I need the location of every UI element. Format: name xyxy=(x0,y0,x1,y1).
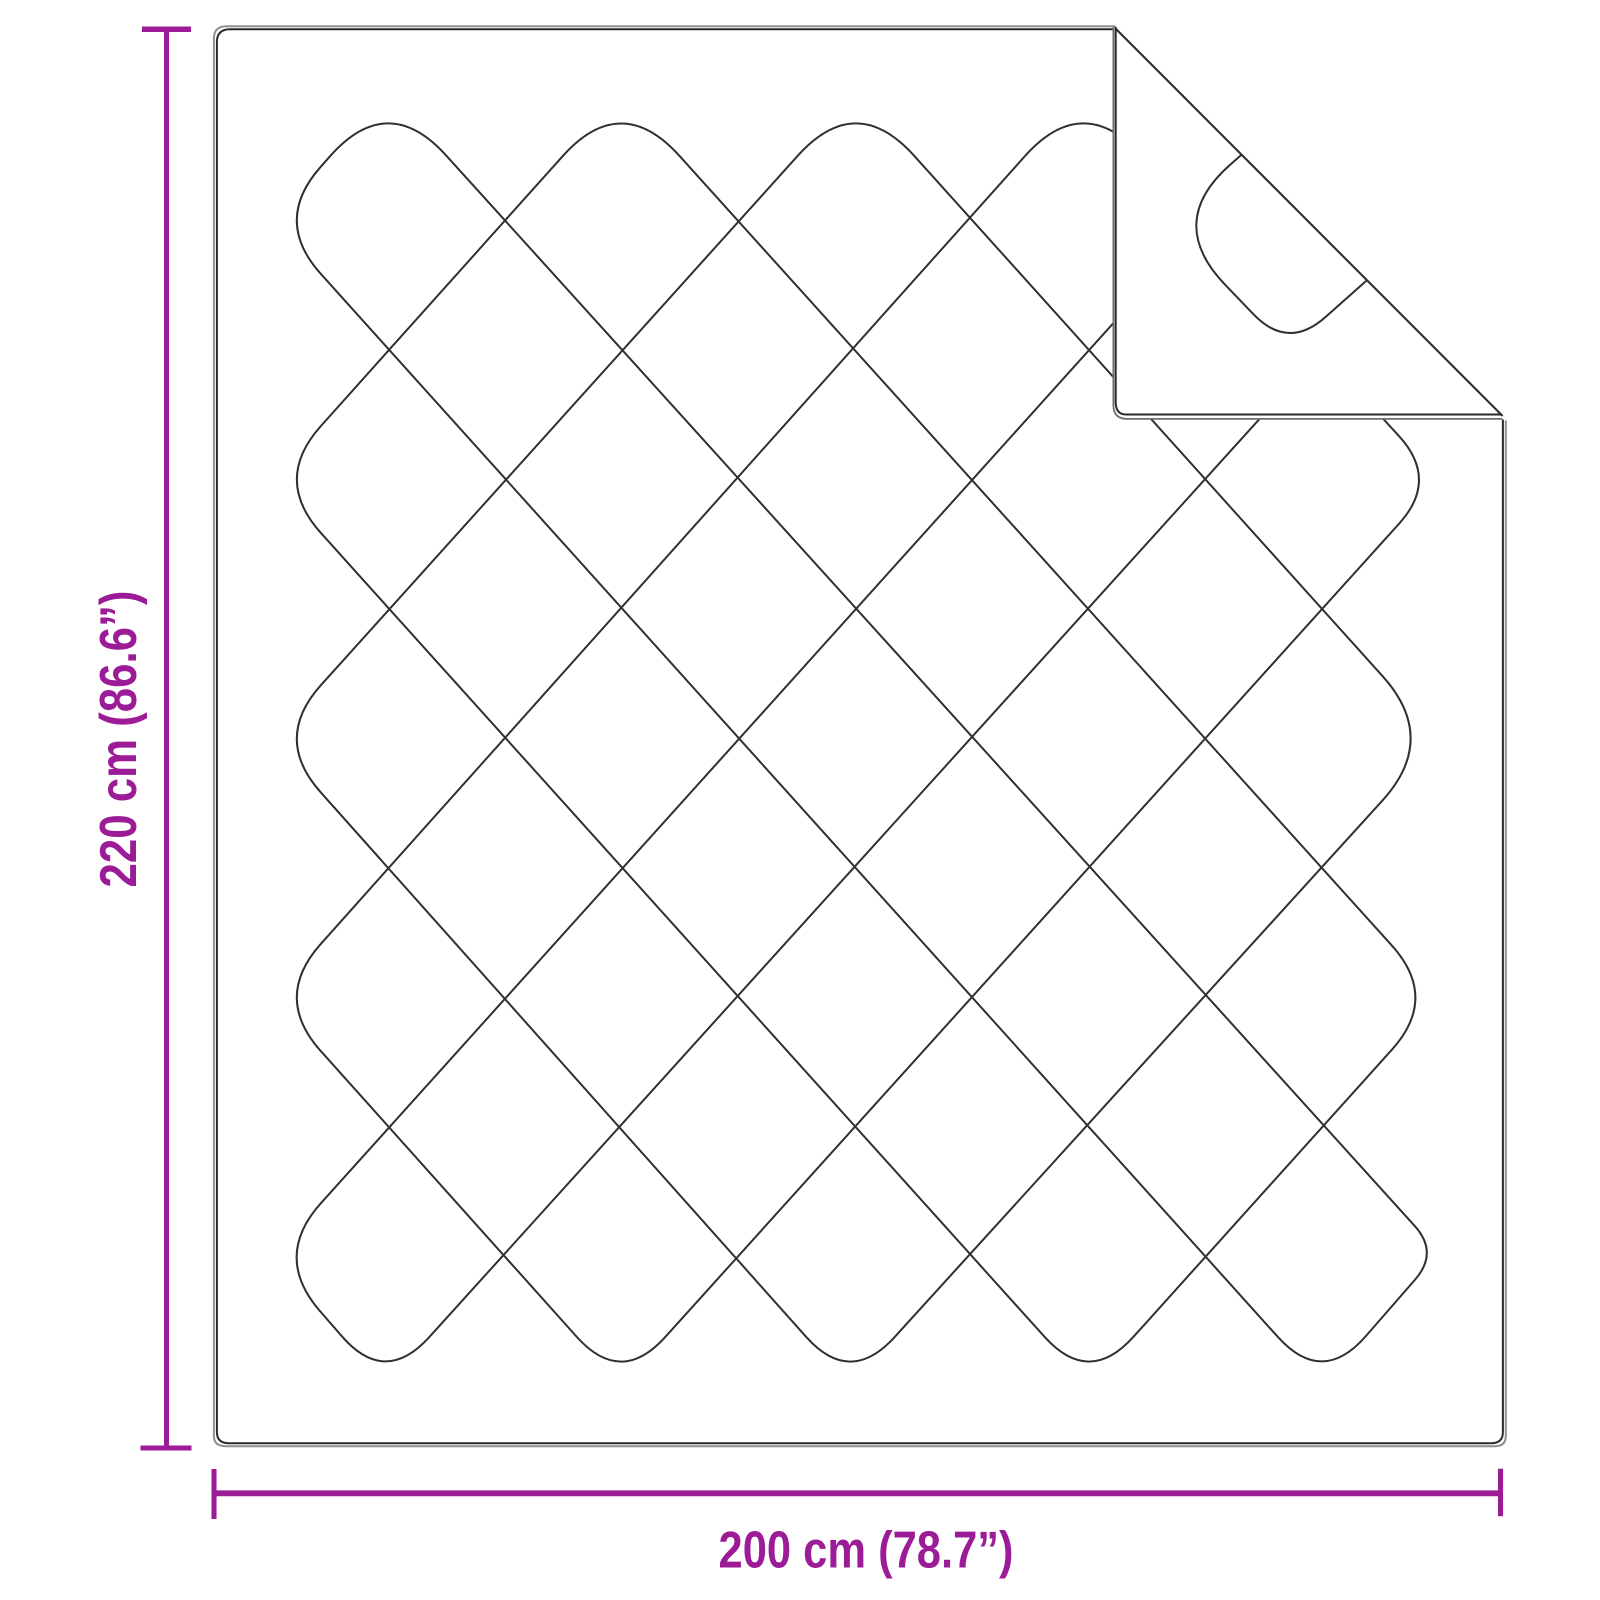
svg-text:220 cm (86.6”): 220 cm (86.6”) xyxy=(90,591,148,888)
svg-text:200 cm (78.7”): 200 cm (78.7”) xyxy=(719,1522,1014,1580)
